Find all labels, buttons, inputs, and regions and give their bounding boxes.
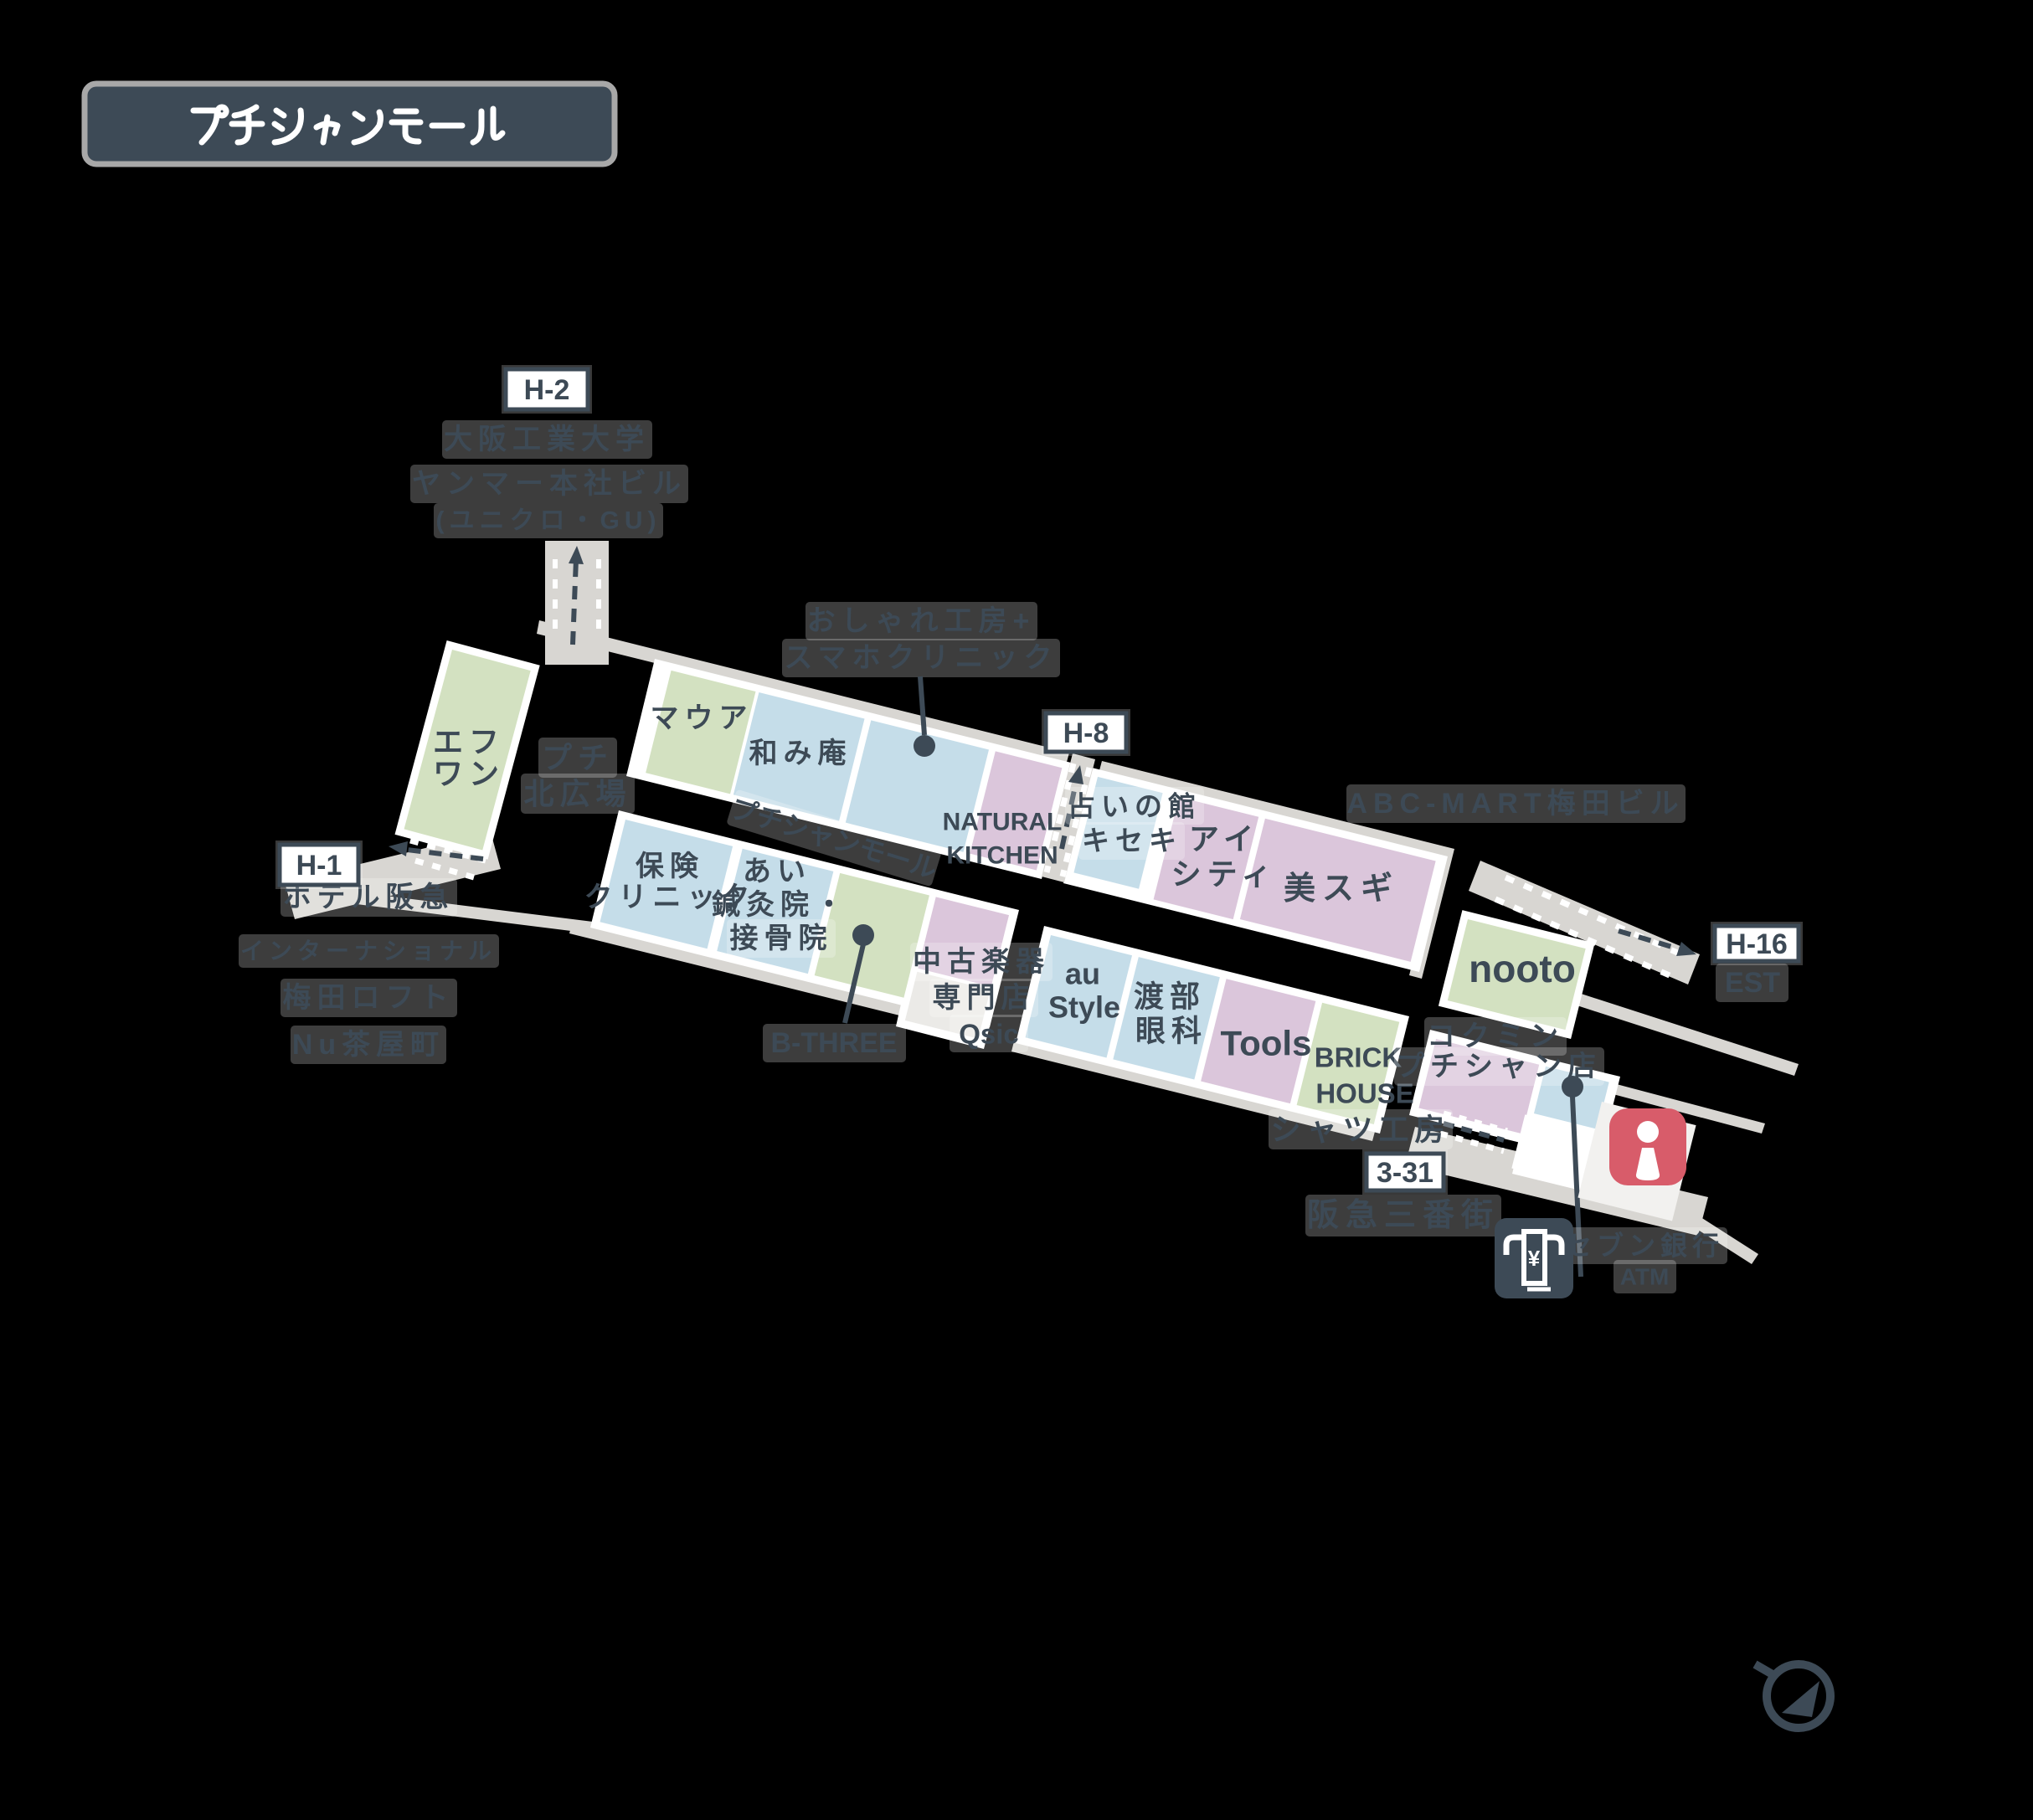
svg-text:おしゃれ工房+: おしゃれ工房+ (807, 605, 1036, 637)
svg-text:鍼灸院・: 鍼灸院・ (712, 888, 849, 921)
svg-text:キセキ: キセキ (1082, 825, 1182, 856)
svg-text:ヤンマー本社ビル: ヤンマー本社ビル (412, 468, 687, 500)
svg-text:インターナショナル: インターナショナル (240, 938, 497, 964)
svg-text:BRICK: BRICK (1315, 1042, 1403, 1073)
svg-text:北広場: 北広場 (523, 777, 631, 811)
svg-text:¥: ¥ (1528, 1246, 1541, 1271)
svg-text:あい: あい (743, 856, 811, 887)
svg-text:ワン: ワン (433, 757, 505, 791)
svg-text:H-2: H-2 (524, 374, 570, 406)
svg-text:中古楽器: 中古楽器 (913, 946, 1050, 978)
svg-text:セブン銀行: セブン銀行 (1565, 1231, 1724, 1261)
svg-text:Tools: Tools (1221, 1024, 1312, 1063)
svg-text:和み庵: 和み庵 (749, 738, 852, 769)
svg-text:渡部: 渡部 (1134, 979, 1206, 1014)
svg-text:KITCHEN: KITCHEN (946, 842, 1058, 870)
svg-text:アイ: アイ (1189, 822, 1259, 856)
svg-text:3-31: 3-31 (1377, 1157, 1433, 1189)
svg-text:Style: Style (1048, 990, 1120, 1025)
svg-text:阪急三番街: 阪急三番街 (1307, 1198, 1500, 1233)
svg-text:Nu茶屋町: Nu茶屋町 (292, 1029, 445, 1061)
svg-text:H-16: H-16 (1726, 928, 1788, 960)
svg-text:梅田ロフト: 梅田ロフト (283, 982, 455, 1014)
svg-text:H-1: H-1 (296, 850, 342, 882)
svg-text:B-THREE: B-THREE (770, 1027, 897, 1059)
svg-text:Qsic: Qsic (959, 1019, 1019, 1050)
svg-text:接骨院: 接骨院 (730, 922, 833, 954)
svg-text:マウア: マウア (651, 702, 754, 734)
svg-text:プチ: プチ (542, 741, 614, 775)
svg-text:保険: 保険 (636, 851, 704, 882)
svg-text:NATURAL: NATURAL (943, 809, 1063, 836)
svg-text:nooto: nooto (1469, 947, 1576, 990)
svg-text:H-8: H-8 (1063, 717, 1109, 749)
svg-text:占いの館: 占いの館 (1068, 791, 1202, 822)
svg-text:au: au (1065, 957, 1100, 991)
svg-text:ABC-MART梅田ビル: ABC-MART梅田ビル (1346, 788, 1684, 820)
svg-text:シティ: シティ (1171, 857, 1278, 892)
svg-text:美スギ: 美スギ (1284, 871, 1399, 907)
svg-text:(ユニクロ・GU): (ユニクロ・GU) (436, 507, 661, 535)
svg-text:スマホクリニック: スマホクリニック (785, 642, 1058, 674)
svg-text:専門店: 専門店 (933, 982, 1036, 1014)
svg-text:眼科: 眼科 (1135, 1014, 1207, 1048)
svg-text:大阪工業大学: 大阪工業大学 (444, 423, 650, 455)
svg-text:EST: EST (1725, 967, 1780, 999)
svg-text:シャツ工房: シャツ工房 (1270, 1113, 1450, 1147)
svg-text:ATM: ATM (1620, 1264, 1670, 1290)
svg-text:エフ: エフ (433, 725, 505, 759)
